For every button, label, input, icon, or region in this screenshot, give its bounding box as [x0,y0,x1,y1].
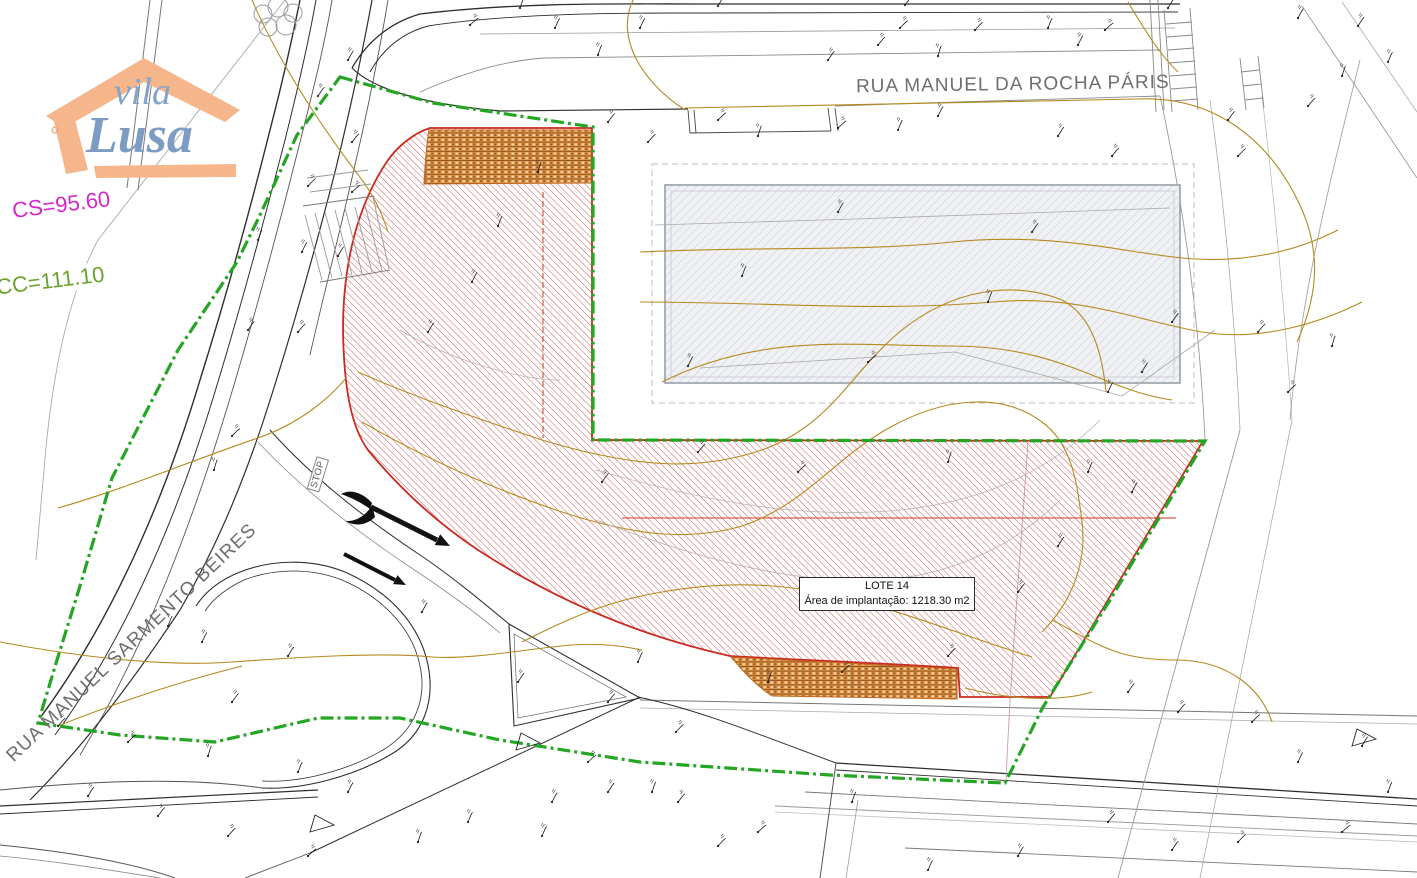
road-network-top [352,4,1180,133]
site-plan-canvas: vila Lusa CS=95.60 CC=111.10 RUA MANUEL … [0,0,1417,878]
lot-area: Área de implantação: 1218.30 m2 [802,594,972,609]
reservation-band-top [424,130,591,184]
lot-title: LOTE 14 [802,579,972,594]
logo-word-lusa: Lusa [85,107,193,164]
turn-arrow-marking [341,492,375,525]
road-network-bottom [0,697,1417,878]
parking-ladder-structures [1150,0,1264,112]
survey-marks [53,0,1396,872]
existing-building [652,164,1215,403]
roundabout-loop [196,562,430,788]
street-name-rocha-paris: RUA MANUEL DA ROCHA PÁRIS [856,72,1170,98]
lot-info-box: LOTE 14 Área de implantação: 1218.30 m2 [799,577,975,611]
vila-lusa-logo: vila Lusa [28,46,248,186]
